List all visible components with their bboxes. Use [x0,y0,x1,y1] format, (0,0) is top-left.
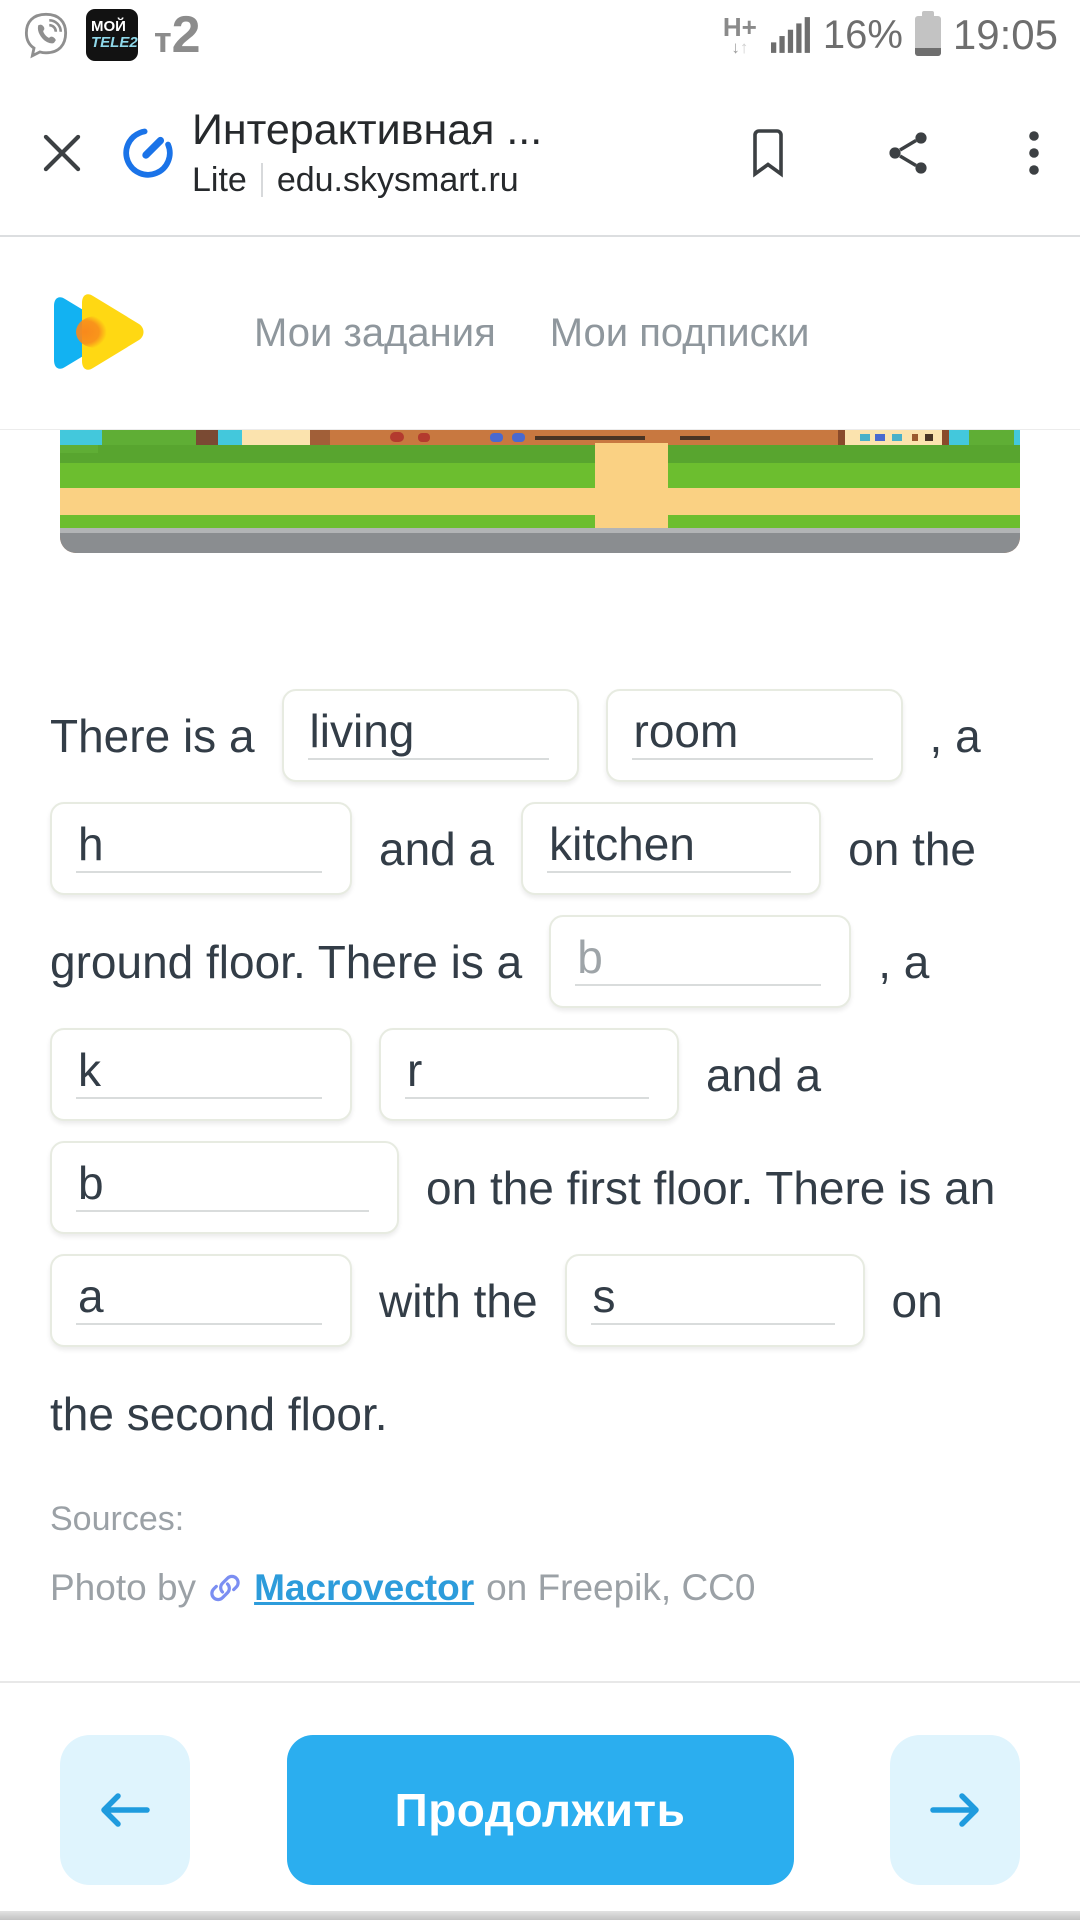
overflow-menu-button[interactable] [1028,130,1040,176]
illustration-block [912,434,918,441]
page-title: Интерактивная ... [192,106,542,155]
nav-link-1[interactable]: Мои подписки [550,311,810,356]
illustration-block [60,533,1020,553]
continue-button[interactable]: Продолжить [287,1735,794,1885]
exercise-row: hand akitchenon the [50,802,1030,895]
share-icon [884,128,934,178]
illustration-block [102,430,196,445]
exercise-text: the second floor. [50,1387,388,1441]
input-underline [575,984,821,986]
answer-input[interactable]: room [606,689,903,782]
answer-value: b [78,1156,104,1210]
illustration-block [196,430,218,445]
illustration-block [860,434,870,441]
illustration-block [60,488,1020,515]
illustration-block [875,434,885,441]
illustration-block [60,515,1020,528]
nav-link-0[interactable]: Мои задания [254,311,496,356]
my-tele2-app-icon: МОЙ TELE2 [86,9,138,61]
answer-value: k [78,1043,101,1097]
url-divider [261,163,263,197]
battery-icon [915,11,941,59]
illustration-block [892,434,902,441]
footer-buttons: Продолжить [0,1735,1080,1885]
exercise-text: , a [930,709,981,763]
viber-icon [22,11,70,59]
answer-value: r [407,1043,422,1097]
answer-value: room [634,704,739,758]
exercise-body: There is alivingroom, ahand akitchenon t… [0,689,1080,1460]
carrier-badge-line2: TELE2 [91,35,138,51]
exercise-text: on [892,1274,943,1328]
lite-mode-icon [120,125,176,181]
illustration-block [242,430,310,445]
answer-input[interactable]: s [565,1254,865,1347]
status-clock: 19:05 [953,11,1058,59]
carrier-badge-line1: МОЙ [91,19,138,35]
illustration-block [60,463,1020,488]
link-icon [208,1571,242,1605]
bookmark-button[interactable] [746,127,790,179]
input-underline [591,1323,835,1325]
arrow-left-icon [89,1788,161,1832]
exercise-text: , a [878,935,929,989]
answer-value: living [310,704,415,758]
credit-prefix: Photo by [50,1567,196,1609]
illustration-block [838,430,845,445]
input-underline [76,1210,369,1212]
footer-divider [0,1681,1080,1683]
illustration-block [60,430,102,445]
exercise-text: with the [379,1274,538,1328]
answer-value: kitchen [549,817,695,871]
illustration-block [60,445,98,453]
share-button[interactable] [884,128,934,178]
exercise-row: ground floor. There is ab, a [50,915,1030,1008]
illustration-block [969,430,1014,445]
illustration-block [390,432,404,442]
nav-links: Мои заданияМои подписки [254,311,809,356]
answer-input[interactable]: living [282,689,579,782]
illustration-block [595,443,668,528]
exercise-text: and a [379,822,494,876]
lite-mode-label: Lite [192,161,247,200]
exercise-row: the second floor. [50,1367,1030,1460]
illustration-block [310,430,330,445]
credit-suffix: on Freepik, CC0 [486,1567,755,1609]
illustration-block [949,430,969,445]
bookmark-icon [746,127,790,179]
site-nav: Мои заданияМои подписки [0,237,1080,430]
illustration-block [512,433,525,442]
input-underline [632,758,873,760]
input-underline [308,758,549,760]
t2-logo: т2 [154,5,199,65]
browser-header: Интерактивная ... Lite edu.skysmart.ru [0,70,1080,237]
network-type-indicator: H+ ↓↑ [723,14,757,56]
illustration-block [925,434,933,441]
credit-link[interactable]: Macrovector [254,1567,474,1609]
exercise-text: There is a [50,709,255,763]
sources-section: Sources: Photo by Macrovector on Freepik… [0,1500,1080,1609]
illustration-block [490,433,503,442]
back-button[interactable] [60,1735,190,1885]
illustration-block [535,436,645,440]
sources-heading: Sources: [50,1500,1030,1539]
illustration-block [1014,430,1020,445]
forward-button[interactable] [890,1735,1020,1885]
illustration-block [60,445,1020,463]
answer-value: b [577,930,603,984]
answer-input[interactable]: a [50,1254,352,1347]
answer-input[interactable]: r [379,1028,679,1121]
exercise-text: and a [706,1048,821,1102]
answer-input[interactable]: k [50,1028,352,1121]
signal-strength-icon [771,17,811,53]
input-underline [76,1097,322,1099]
arrow-right-icon [919,1788,991,1832]
answer-input[interactable]: b [50,1141,399,1234]
exercise-text: ground floor. There is a [50,935,522,989]
exercise-text: on the [848,822,976,876]
page-url: edu.skysmart.ru [277,161,519,200]
answer-input[interactable]: kitchen [521,802,821,895]
answer-value: s [593,1269,616,1323]
input-underline [547,871,791,873]
illustration-block [942,430,949,445]
exercise-row: There is alivingroom, a [50,689,1030,782]
exercise-row: awith theson [50,1254,1030,1347]
exercise-illustration [60,430,1020,553]
illustration-block [418,433,430,442]
status-bar: МОЙ TELE2 т2 H+ ↓↑ 16% 19:05 [0,0,1080,70]
close-button[interactable] [30,121,94,185]
bottom-strip [0,1911,1080,1920]
exercise-row: krand a [50,1028,1030,1121]
answer-input[interactable]: b [549,915,851,1008]
illustration-block [680,436,710,440]
close-icon [39,130,85,176]
illustration-block [218,430,242,445]
answer-input[interactable]: h [50,802,352,895]
answer-value: h [78,817,104,871]
skysmart-logo[interactable] [46,290,146,376]
input-underline [405,1097,649,1099]
battery-percent: 16% [823,13,903,58]
answer-value: a [78,1269,104,1323]
more-vertical-icon [1028,130,1040,176]
input-underline [76,1323,322,1325]
input-underline [76,871,322,873]
exercise-row: bon the first floor. There is an [50,1141,1030,1234]
exercise-text: on the first floor. There is an [426,1161,995,1215]
